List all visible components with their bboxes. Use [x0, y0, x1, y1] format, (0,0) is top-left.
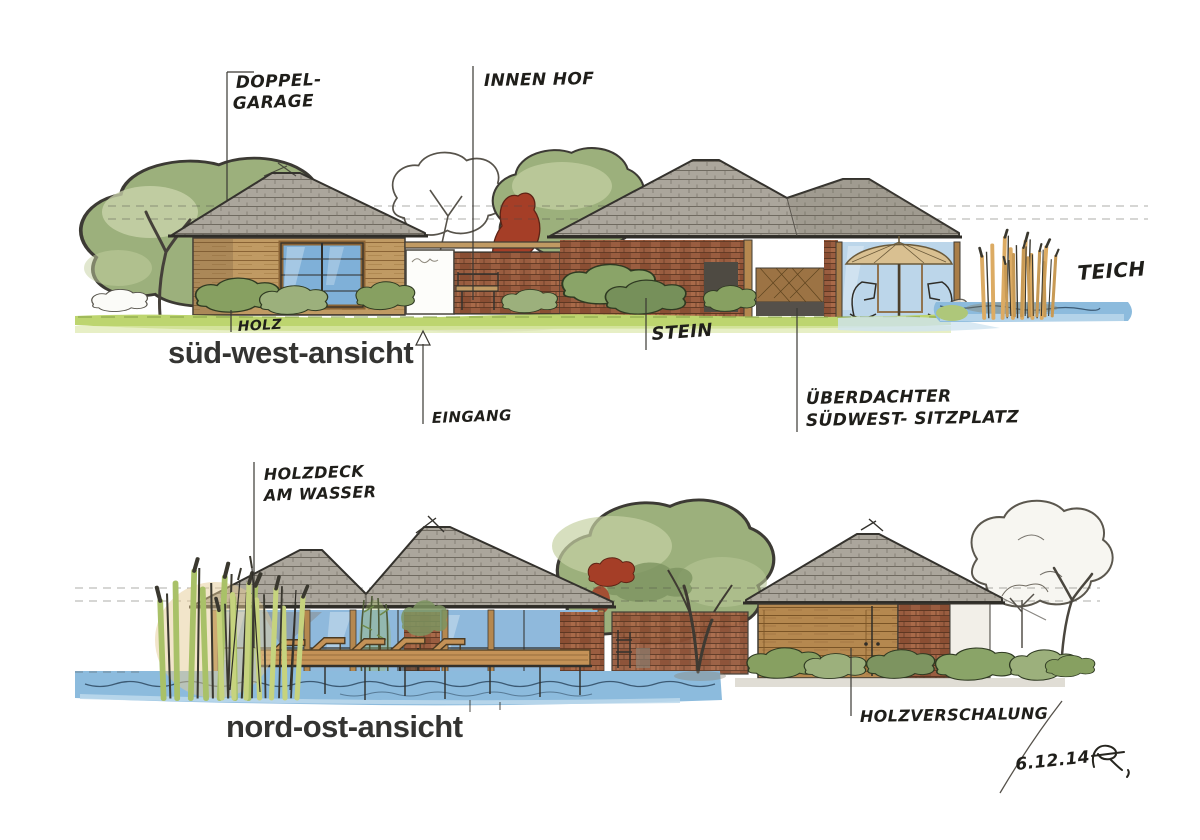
- label-holz: HOLZ: [237, 317, 283, 335]
- ground-top: [75, 314, 1000, 333]
- signature-monogram: [1092, 746, 1129, 777]
- lattice-panel: [756, 268, 824, 302]
- sketch-tree: [393, 152, 506, 235]
- architectural-sketch-page: DOPPEL- GARAGE INNEN HOF HOLZ EINGANG ST…: [0, 0, 1200, 840]
- label-doppel-garage-1: DOPPEL-: [235, 70, 321, 93]
- label-ueberdachter: ÜBERDACHTER: [806, 384, 952, 409]
- label-suedwest-sitzplatz: SÜDWEST- SITZPLATZ: [806, 405, 1020, 431]
- courtyard-wall-ne: [612, 612, 748, 674]
- pergola-beam: [405, 242, 565, 248]
- garage-roof-ne: [746, 534, 1002, 602]
- title-south-west: süd-west-ansicht: [168, 335, 413, 370]
- elevation-drawing: DOPPEL- GARAGE INNEN HOF HOLZ EINGANG ST…: [0, 0, 1200, 840]
- entrance-arrow: [416, 331, 430, 424]
- tree-right-sketch: [972, 501, 1113, 655]
- label-stein: STEIN: [651, 320, 714, 345]
- deck-platform: [260, 650, 590, 666]
- title-north-east: nord-ost-ansicht: [226, 709, 463, 744]
- label-teich: TEICH: [1077, 256, 1147, 285]
- brick-corner: [560, 612, 604, 678]
- shrubs-ne: [735, 648, 1095, 687]
- south-west-elevation: DOPPEL- GARAGE INNEN HOF HOLZ EINGANG ST…: [75, 66, 1148, 432]
- label-eingang: EINGANG: [432, 406, 513, 427]
- label-holzdeck-1: HOLZDECK: [263, 461, 365, 484]
- label-doppel-garage-2: GARAGE: [232, 91, 314, 114]
- north-east-elevation: HOLZDECK AM WASSER HOLZVERSCHALUNG nord-…: [75, 461, 1129, 793]
- label-holzverschalung: HOLZVERSCHALUNG: [860, 704, 1049, 726]
- label-innenhof: INNEN HOF: [484, 69, 595, 91]
- label-holzdeck-2: AM WASSER: [261, 482, 376, 505]
